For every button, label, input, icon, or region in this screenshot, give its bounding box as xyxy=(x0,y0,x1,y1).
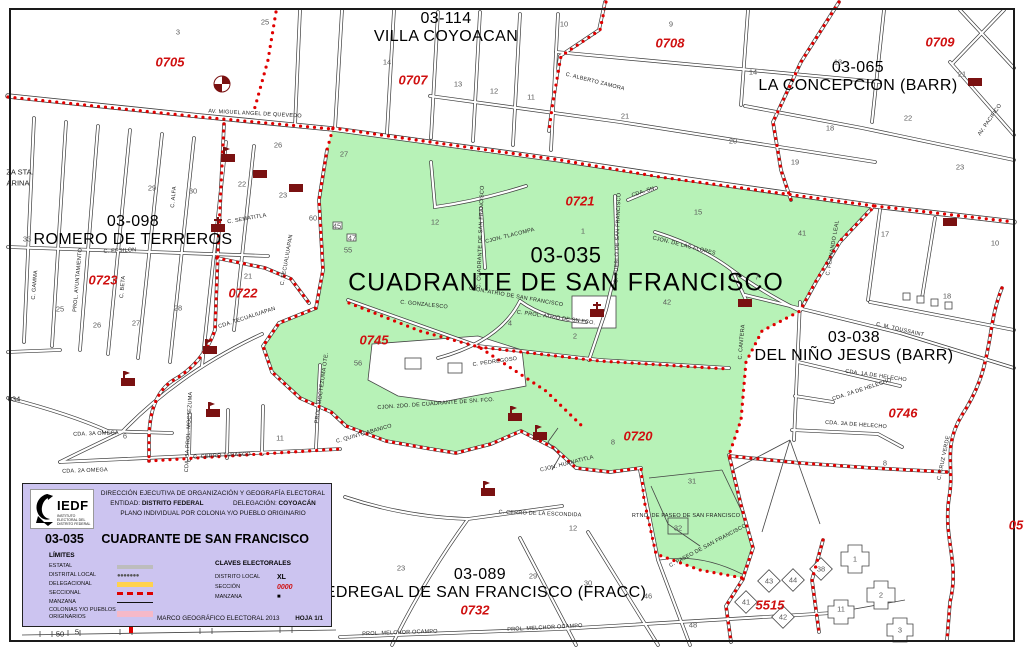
claves-item-label: SECCIÓN xyxy=(215,584,277,590)
limites-item: DELEGACIONAL xyxy=(49,580,199,589)
manzana-line-swatch xyxy=(117,602,153,604)
street-number-marker xyxy=(129,627,133,633)
claves-item-value: 0000 xyxy=(277,584,293,591)
claves-item-value: ■ xyxy=(277,594,281,600)
legend-title: 03-035 CUADRANTE DE SAN FRANCISCO xyxy=(23,532,331,546)
claves-list: DISTRITO LOCALXLSECCIÓN0000MANZANA■ xyxy=(215,572,325,602)
delegacion-label: DELEGACIÓN: xyxy=(233,500,277,507)
entidad-label: ENTIDAD: xyxy=(110,500,140,507)
iedf-bird-icon xyxy=(33,492,57,526)
electoral-map-sheet: 03-114VILLA COYOACAN03-065LA CONCEPCION … xyxy=(0,0,1024,650)
limites-item-label: DISTRITAL LOCAL xyxy=(49,572,117,578)
limites-item-label: COLONIAS Y/O PUEBLOS ORIGINARIOS xyxy=(49,607,117,619)
claves-item-label: DISTRITO LOCAL xyxy=(215,574,277,580)
estatal-line-swatch xyxy=(117,565,153,569)
claves-item: MANZANA■ xyxy=(215,592,325,602)
seccional-line-swatch xyxy=(117,592,153,595)
limites-item-label: DELEGACIONAL xyxy=(49,581,117,587)
legend-title-name: CUADRANTE DE SAN FRANCISCO xyxy=(101,532,309,546)
limites-list: ESTATALDISTRITAL LOCAL●●●●●●●DELEGACIONA… xyxy=(49,562,199,620)
claves-item-value: XL xyxy=(277,574,286,581)
limites-heading: LÍMITES xyxy=(49,552,75,559)
legend-title-code: 03-035 xyxy=(45,532,84,546)
limites-item: ESTATAL xyxy=(49,562,199,571)
limites-item: DISTRITAL LOCAL●●●●●●● xyxy=(49,571,199,580)
marco-geografico-label: MARCO GEOGRÁFICO ELECTORAL 2013 xyxy=(157,615,279,622)
limites-item-label: MANZANA xyxy=(49,599,117,605)
iedf-logo-text: IEDF xyxy=(57,498,89,513)
delegacion-value: COYOACÁN xyxy=(279,500,316,507)
legend-entity-line: ENTIDAD: DISTRITO FEDERAL DELEGACIÓN: CO… xyxy=(99,500,327,507)
iedf-logo: IEDF INSTITUTO ELECTORAL DEL DISTRITO FE… xyxy=(30,489,94,529)
limites-item: MANZANA xyxy=(49,598,199,607)
distrital-line-swatch: ●●●●●●● xyxy=(117,573,153,579)
claves-heading: CLAVES ELECTORALES xyxy=(215,560,291,567)
delegacional-line-swatch xyxy=(117,582,153,587)
claves-item-label: MANZANA xyxy=(215,594,277,600)
iedf-logo-subtext: INSTITUTO ELECTORAL DEL DISTRITO FEDERAL xyxy=(57,514,91,527)
claves-item: DISTRITO LOCALXL xyxy=(215,572,325,582)
colonias-line-swatch xyxy=(117,611,153,617)
entidad-value: DISTRITO FEDERAL xyxy=(142,500,204,507)
legend-org-line: DIRECCIÓN EJECUTIVA DE ORGANIZACIÓN Y GE… xyxy=(99,490,327,497)
legend-plano-line: PLANO INDIVIDUAL POR COLONIA Y/O PUEBLO … xyxy=(99,510,327,517)
limites-item: SECCIONAL xyxy=(49,589,199,598)
hoja-label: HOJA 1/1 xyxy=(295,615,323,622)
limites-item-label: ESTATAL xyxy=(49,563,117,569)
limites-item-label: SECCIONAL xyxy=(49,590,117,596)
claves-item: SECCIÓN0000 xyxy=(215,582,325,592)
legend-box: IEDF INSTITUTO ELECTORAL DEL DISTRITO FE… xyxy=(22,483,332,627)
legend-header: DIRECCIÓN EJECUTIVA DE ORGANIZACIÓN Y GE… xyxy=(99,490,327,517)
legend-footer: MARCO GEOGRÁFICO ELECTORAL 2013 HOJA 1/1 xyxy=(157,615,323,622)
